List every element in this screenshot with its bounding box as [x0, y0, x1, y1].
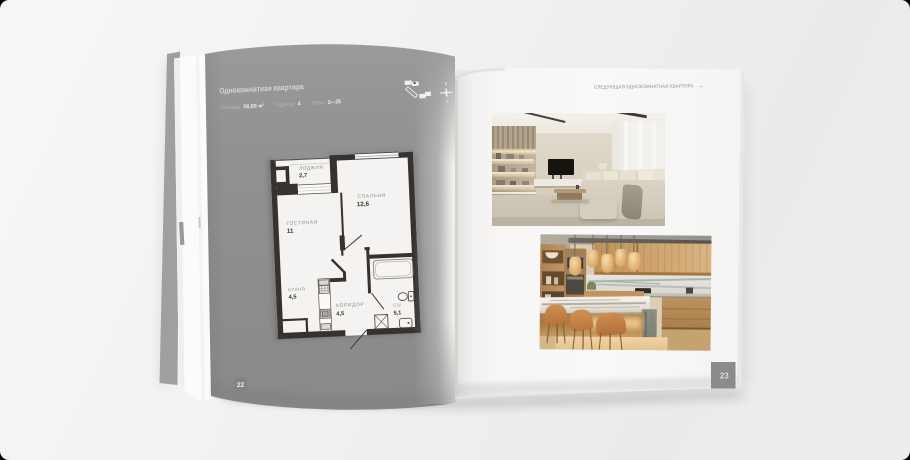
svg-text:5,1: 5,1: [393, 310, 401, 316]
svg-text:23: 23: [720, 372, 729, 381]
svg-text:4: 4: [298, 101, 301, 107]
svg-text:СПАЛЬНЯ: СПАЛЬНЯ: [357, 193, 386, 200]
svg-text:11: 11: [287, 228, 294, 235]
svg-text:12,6: 12,6: [357, 201, 370, 209]
svg-text:4,5: 4,5: [288, 294, 297, 300]
svg-text:КОРИДОР: КОРИДОР: [336, 302, 365, 309]
svg-text:2—25: 2—25: [327, 99, 341, 106]
svg-text:СЛЕДУЮЩАЯ ОДНОКОМНАТНАЯ КВАРТИ: СЛЕДУЮЩАЯ ОДНОКОМНАТНАЯ КВАРТИРА: [594, 83, 694, 90]
svg-text:2,7: 2,7: [299, 173, 307, 179]
svg-text:38,89 м²: 38,89 м²: [243, 103, 264, 110]
svg-text:КУХНЯ: КУХНЯ: [288, 286, 305, 292]
svg-text:4,5: 4,5: [336, 311, 345, 317]
svg-text:Площадь:: Площадь:: [220, 104, 241, 111]
svg-text:Подъезд:: Подъезд:: [274, 102, 295, 109]
svg-text:→: →: [697, 84, 703, 90]
svg-text:С/У: С/У: [393, 302, 402, 307]
svg-text:Этаж:: Этаж:: [312, 100, 325, 107]
svg-text:22: 22: [237, 382, 245, 389]
